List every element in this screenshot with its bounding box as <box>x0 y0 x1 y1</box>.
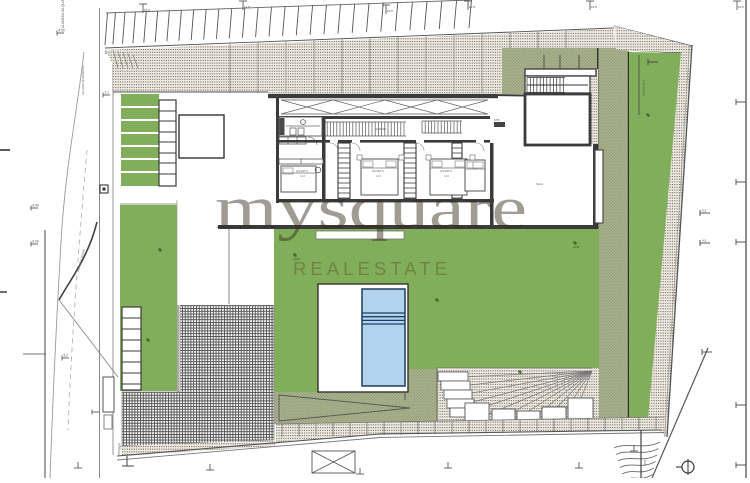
svg-text:KITS: KITS <box>494 118 500 122</box>
svg-text:ALCHOS NASCENTE: ALCHOS NASCENTE <box>81 65 85 95</box>
svg-text:2.1: 2.1 <box>105 91 110 95</box>
svg-text:QUARTO: QUARTO <box>372 169 385 173</box>
svg-text:ALAMEDA DA QUINTA: ALAMEDA DA QUINTA <box>61 0 65 28</box>
svg-text:12.5: 12.5 <box>144 8 150 12</box>
svg-text:SALA: SALA <box>536 182 543 186</box>
svg-text:6.00: 6.00 <box>33 240 39 244</box>
svg-text:12.5: 12.5 <box>591 5 597 9</box>
svg-text:mysquare: mysquare <box>215 175 527 241</box>
svg-text:12.5: 12.5 <box>244 5 250 9</box>
svg-text:6.40: 6.40 <box>33 204 39 208</box>
svg-text:QUADR.: QUADR. <box>375 127 387 131</box>
svg-text:12.5: 12.5 <box>387 9 393 13</box>
svg-text:QUARTO: QUARTO <box>440 169 453 173</box>
svg-text:limite: limite <box>643 460 647 467</box>
svg-text:QUARTO: QUARTO <box>296 169 309 173</box>
svg-text:REALESTATE: REALESTATE <box>293 258 451 279</box>
svg-text:PASSEIO: PASSEIO <box>117 442 121 455</box>
svg-text:5.2: 5.2 <box>64 354 69 358</box>
svg-text:4.9: 4.9 <box>702 239 707 243</box>
svg-text:+0.00: +0.00 <box>573 245 580 249</box>
svg-text:4.50: 4.50 <box>59 29 65 33</box>
svg-text:12.5: 12.5 <box>469 5 475 9</box>
svg-text:12.5: 12.5 <box>738 5 744 9</box>
svg-text:5.3: 5.3 <box>702 209 707 213</box>
svg-text:sebe vegetal: sebe vegetal <box>642 80 646 96</box>
